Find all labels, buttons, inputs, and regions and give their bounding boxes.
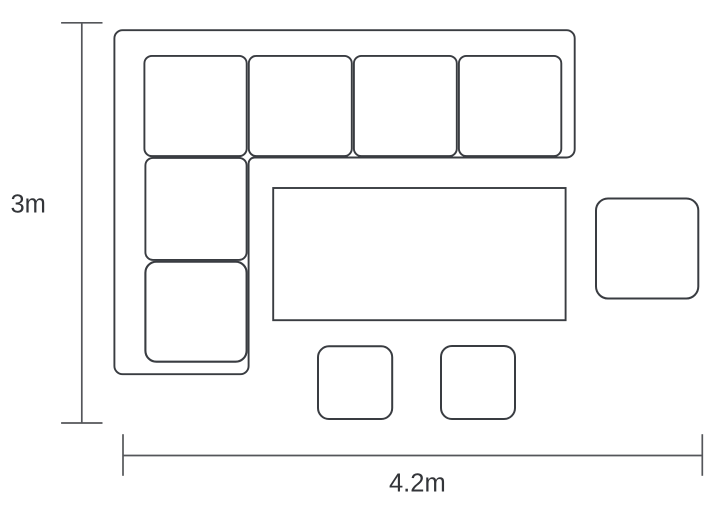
svg-text:3m: 3m: [11, 191, 46, 219]
svg-text:4.2m: 4.2m: [389, 470, 446, 498]
